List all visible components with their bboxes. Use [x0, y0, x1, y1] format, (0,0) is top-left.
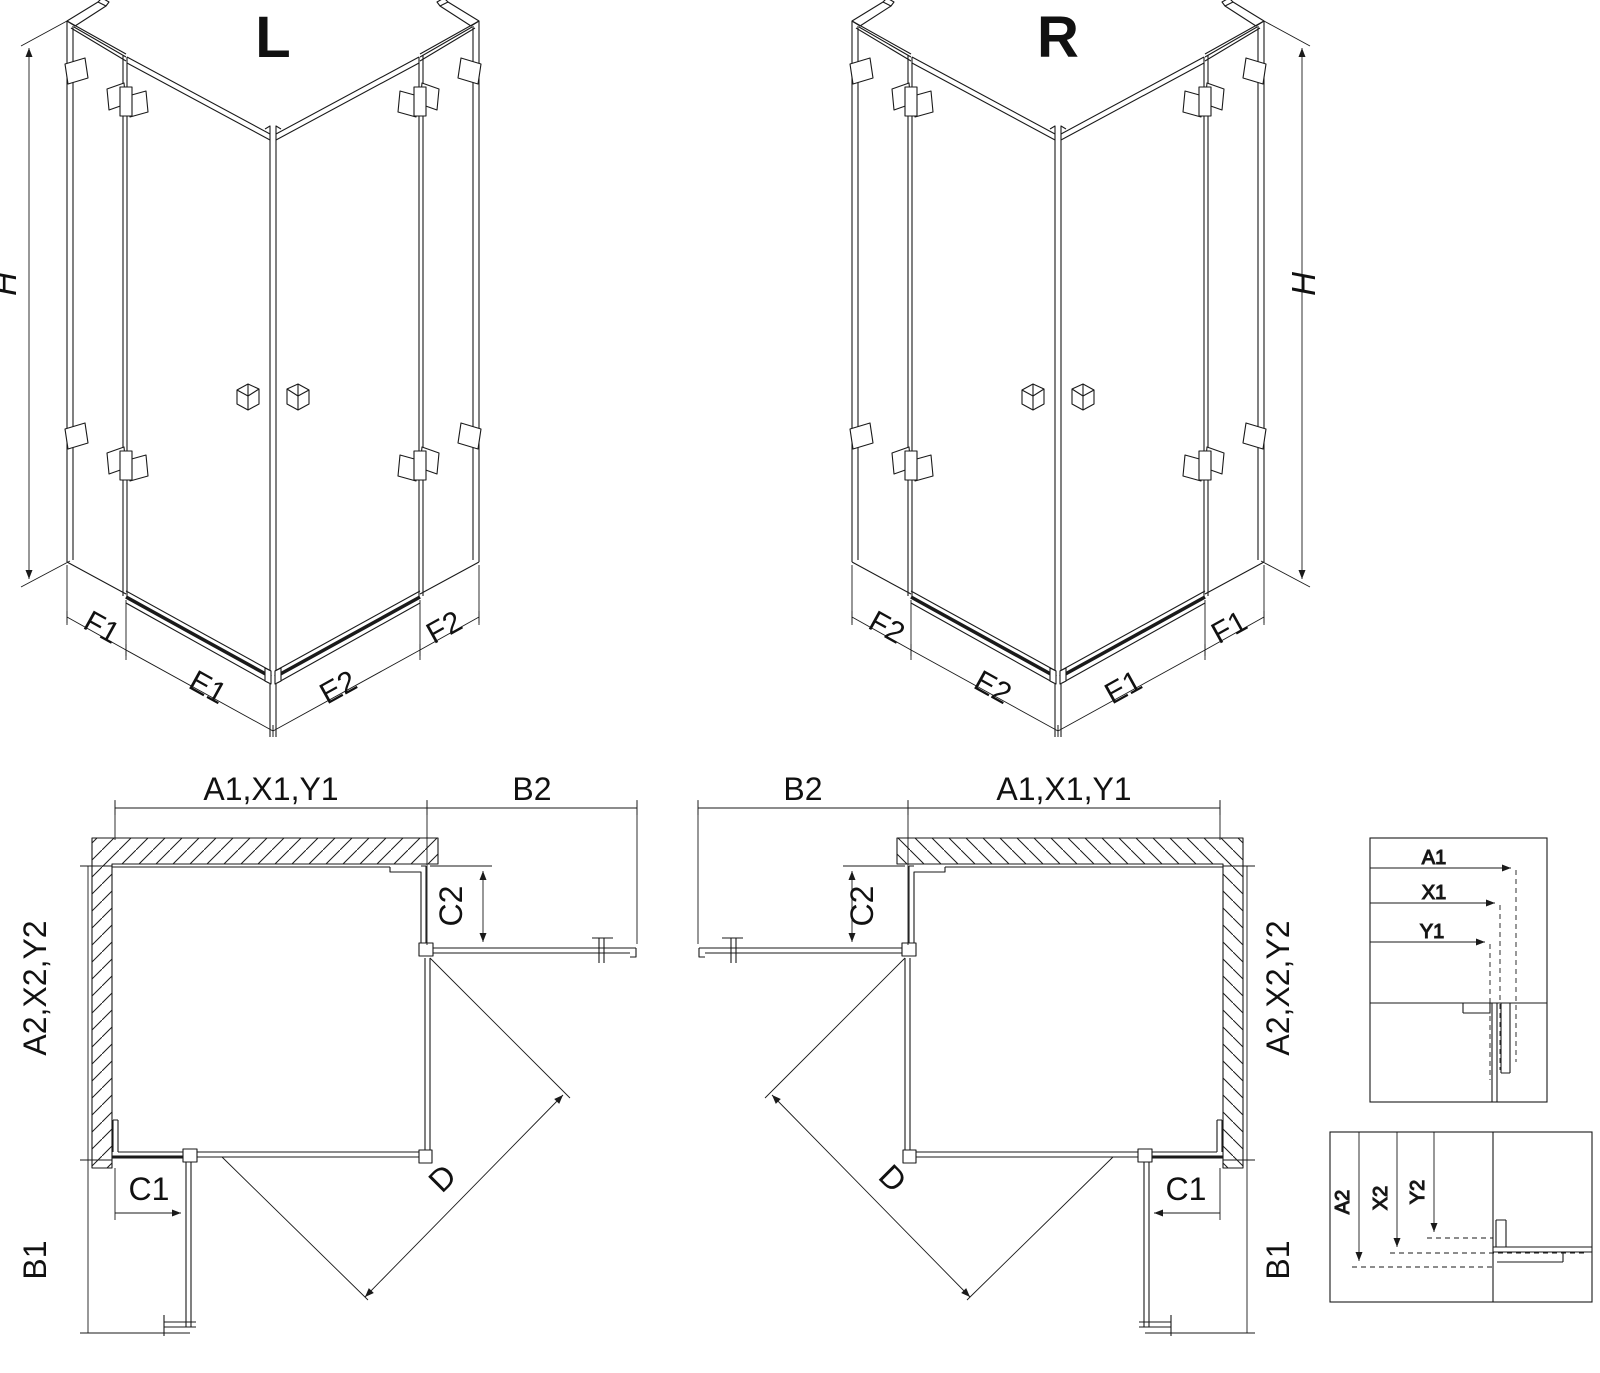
detail-label-y2: Y2	[1407, 1180, 1429, 1204]
technical-drawing-page: L H F1 E1 E2 F2 R H F2 E2 E1 F1 A1,X1,Y1…	[0, 0, 1600, 1373]
dim-label-c1-planR: C1	[1166, 1171, 1207, 1207]
variant-label-right: R	[1037, 5, 1079, 70]
dim-label-b2-planL: B2	[512, 771, 551, 807]
detail-label-a1: A1	[1422, 847, 1446, 869]
detail-label-y1: Y1	[1420, 921, 1444, 943]
iso-view-right: R H F2 E2 E1 F1	[850, 0, 1322, 737]
dim-label-f1-left: F1	[78, 605, 125, 651]
plan-view-left: A1,X1,Y1 B2 C2 A2,X2,Y2 C1 B1 D	[17, 771, 637, 1336]
dim-label-c2-planL: C2	[433, 886, 469, 927]
dim-label-b2-planR: B2	[783, 771, 822, 807]
dim-label-b1-planR: B1	[1260, 1240, 1296, 1279]
dim-label-a2x2y2-planR: A2,X2,Y2	[1260, 920, 1296, 1055]
detail-label-a2: A2	[1332, 1190, 1354, 1214]
shower-enclosure-diagram: L H F1 E1 E2 F2 R H F2 E2 E1 F1 A1,X1,Y1…	[0, 0, 1600, 1373]
dim-label-a1x1y1-planR: A1,X1,Y1	[996, 771, 1131, 807]
variant-label-left: L	[255, 5, 290, 70]
dim-label-c1-planL: C1	[129, 1171, 170, 1207]
iso-view-left: L H F1 E1 E2 F2	[0, 0, 481, 737]
detail-label-x1: X1	[1422, 882, 1446, 904]
dim-label-height-left: H	[0, 272, 23, 296]
detail-box-depth: A2 X2 Y2	[1330, 1132, 1592, 1302]
dim-label-a1x1y1-planL: A1,X1,Y1	[203, 771, 338, 807]
dim-label-b1-planL: B1	[17, 1240, 53, 1279]
dim-label-c2-planR: C2	[844, 886, 880, 927]
plan-view-right: B2 A1,X1,Y1 C2 A2,X2,Y2 C1 B1 D	[698, 771, 1296, 1336]
dim-label-f1-right: F1	[1206, 605, 1253, 651]
dim-label-d-planR: D	[872, 1157, 914, 1199]
dim-label-f2-right: F2	[863, 605, 910, 651]
dim-label-a2x2y2-planL: A2,X2,Y2	[17, 920, 53, 1055]
detail-box-width: A1 X1 Y1	[1370, 838, 1547, 1102]
dim-label-d-planL: D	[421, 1157, 463, 1199]
dim-label-f2-left: F2	[421, 605, 468, 651]
detail-label-x2: X2	[1370, 1186, 1392, 1210]
dim-label-height-right: H	[1285, 272, 1322, 296]
